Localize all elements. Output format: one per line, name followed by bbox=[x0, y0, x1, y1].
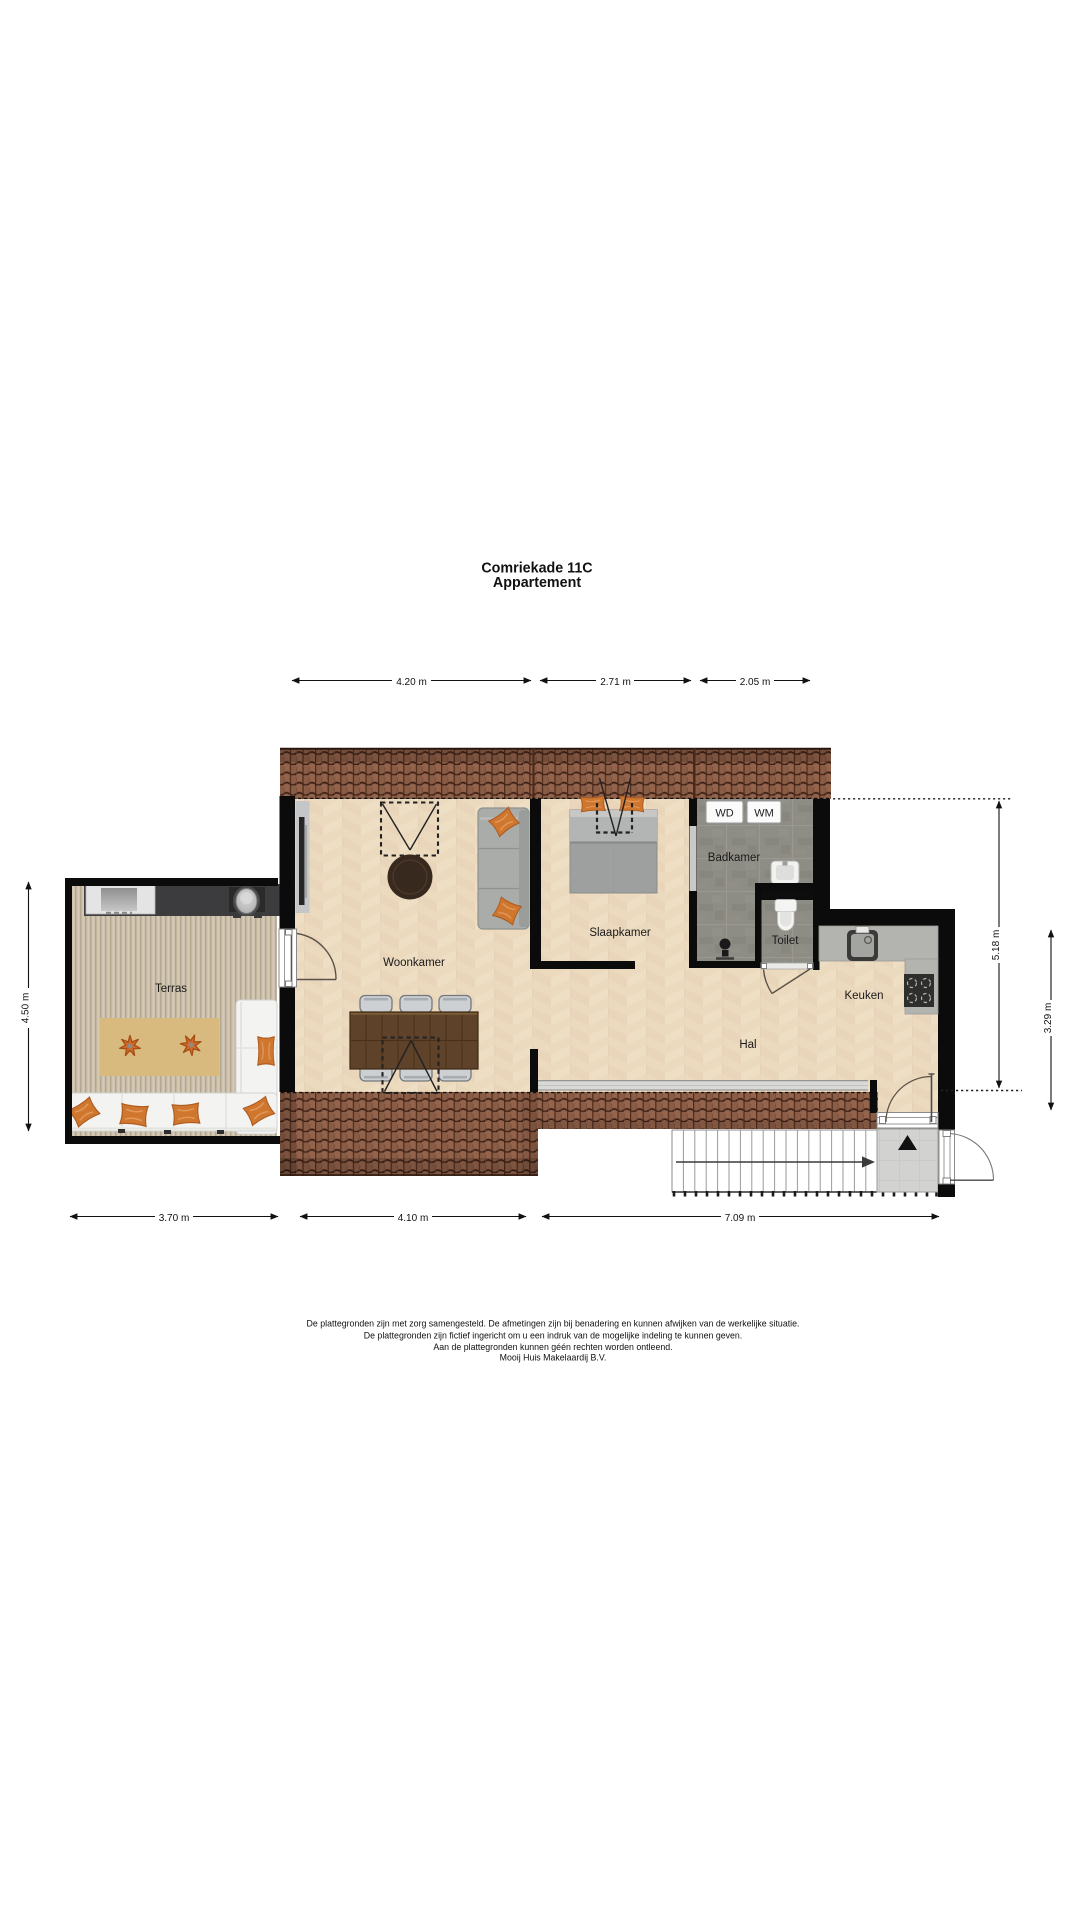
svg-text:Toilet: Toilet bbox=[772, 935, 800, 947]
svg-text:Terras: Terras bbox=[155, 983, 187, 995]
svg-text:Keuken: Keuken bbox=[844, 990, 883, 1002]
svg-text:Woonkamer: Woonkamer bbox=[383, 957, 445, 969]
svg-text:3.29 m: 3.29 m bbox=[1043, 1003, 1054, 1034]
svg-text:Badkamer: Badkamer bbox=[708, 852, 761, 864]
svg-text:5.18 m: 5.18 m bbox=[991, 930, 1002, 961]
svg-text:WM: WM bbox=[754, 808, 774, 820]
svg-text:Aan de plattegronden kunnen gé: Aan de plattegronden kunnen géén rechten… bbox=[433, 1342, 672, 1352]
svg-text:4.10 m: 4.10 m bbox=[398, 1213, 429, 1224]
svg-text:Hal: Hal bbox=[739, 1039, 756, 1051]
svg-text:4.20 m: 4.20 m bbox=[396, 677, 427, 688]
svg-text:2.71 m: 2.71 m bbox=[600, 677, 631, 688]
svg-text:Slaapkamer: Slaapkamer bbox=[589, 927, 651, 939]
svg-text:3.70 m: 3.70 m bbox=[159, 1213, 190, 1224]
svg-text:2.05 m: 2.05 m bbox=[740, 677, 771, 688]
svg-text:De plattegronden zijn met zorg: De plattegronden zijn met zorg samengest… bbox=[307, 1319, 800, 1329]
svg-text:4.50 m: 4.50 m bbox=[21, 993, 32, 1024]
svg-text:De plattegronden zijn fictief: De plattegronden zijn fictief ingericht … bbox=[364, 1331, 743, 1341]
svg-text:WD: WD bbox=[715, 808, 733, 820]
svg-text:7.09 m: 7.09 m bbox=[725, 1213, 756, 1224]
svg-text:Appartement: Appartement bbox=[493, 575, 581, 591]
svg-text:Mooij Huis Makelaardij B.V.: Mooij Huis Makelaardij B.V. bbox=[500, 1353, 607, 1363]
